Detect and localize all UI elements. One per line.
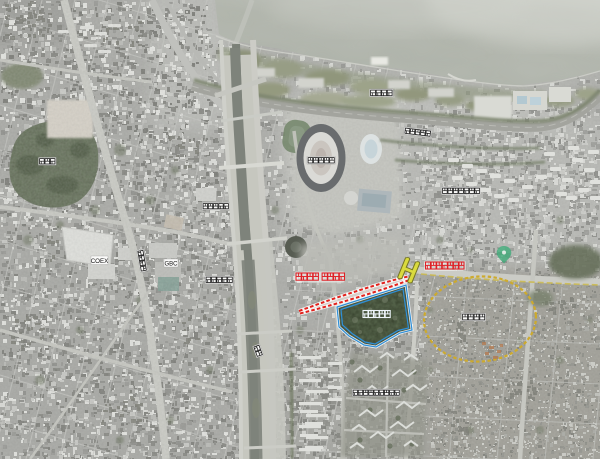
svg-text:GBC: GBC — [164, 261, 178, 267]
svg-text:COEX: COEX — [91, 258, 109, 265]
